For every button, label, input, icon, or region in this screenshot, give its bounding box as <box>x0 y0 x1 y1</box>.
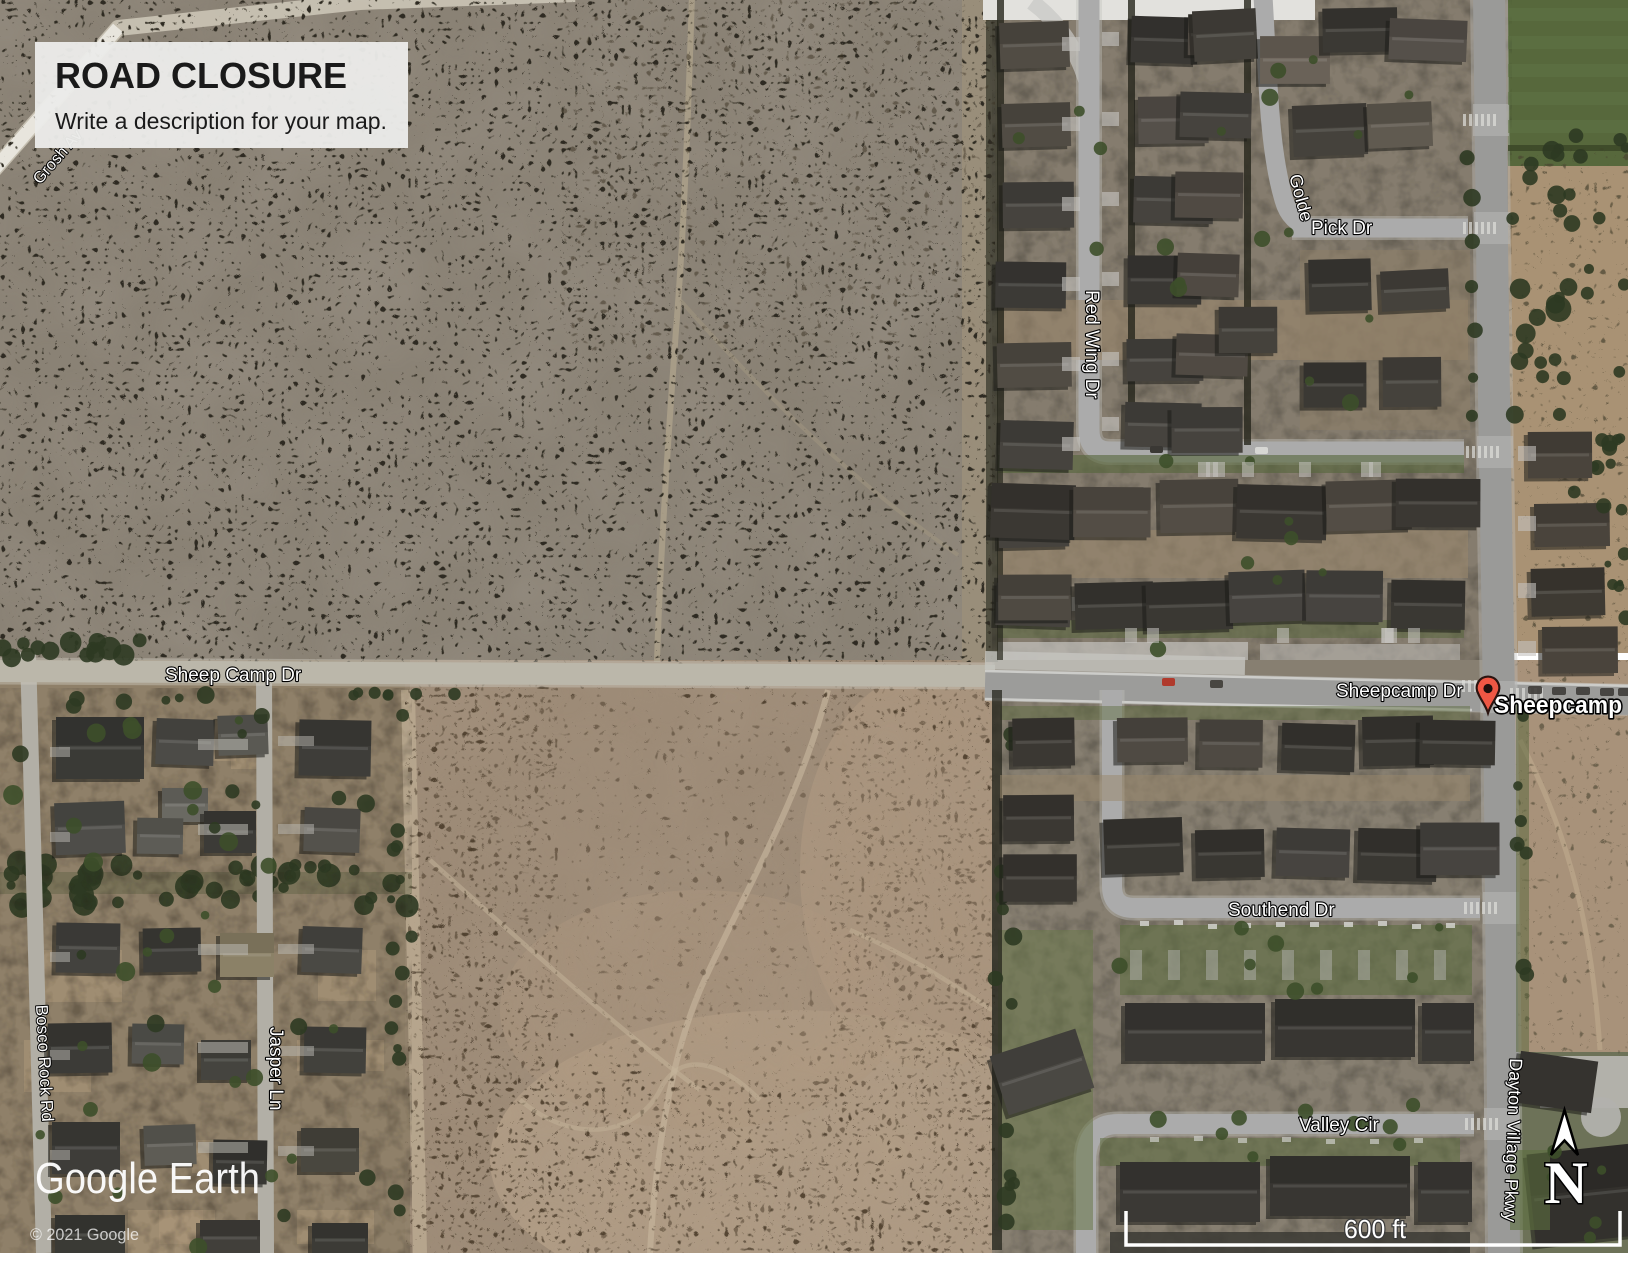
svg-text:© 2021 Google: © 2021 Google <box>30 1225 139 1244</box>
svg-text:N: N <box>1544 1150 1587 1216</box>
svg-text:ROAD CLOSURE: ROAD CLOSURE <box>55 55 347 96</box>
svg-text:Google Earth: Google Earth <box>35 1154 260 1203</box>
svg-text:Southend Dr: Southend Dr <box>1228 900 1335 921</box>
svg-text:600 ft: 600 ft <box>1344 1214 1407 1244</box>
svg-text:Sheep Camp Dr: Sheep Camp Dr <box>165 665 302 686</box>
svg-text:Write a description for your m: Write a description for your map. <box>55 108 387 134</box>
svg-text:Jasper Ln: Jasper Ln <box>265 1027 286 1110</box>
svg-text:Sheepcamp: Sheepcamp <box>1494 692 1622 719</box>
svg-text:Pick Dr: Pick Dr <box>1311 218 1373 239</box>
svg-text:Valley Cir: Valley Cir <box>1299 1115 1380 1136</box>
svg-text:Sheepcamp Dr: Sheepcamp Dr <box>1336 681 1463 702</box>
svg-text:Red Wing Dr: Red Wing Dr <box>1081 290 1102 399</box>
